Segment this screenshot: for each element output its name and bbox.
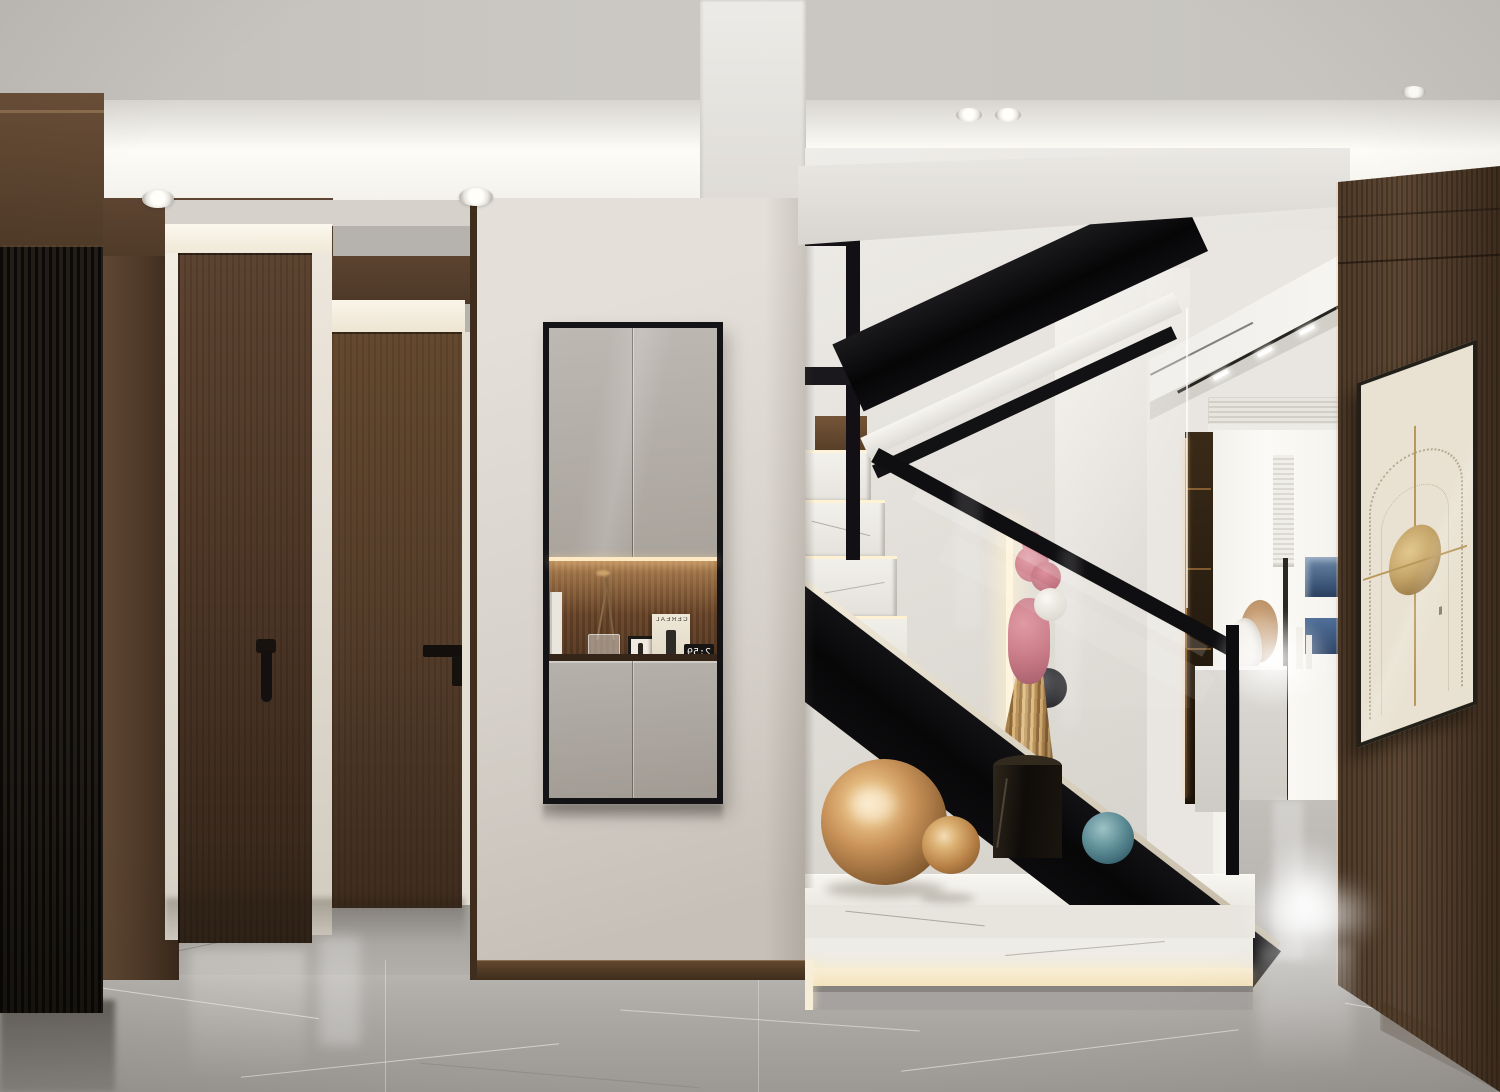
portal2-header	[332, 256, 470, 304]
gold-sphere-highlight	[851, 788, 895, 822]
door-grain	[332, 332, 462, 908]
balustrade-end-post	[1226, 625, 1239, 875]
ceiling-column	[700, 0, 806, 214]
platform-left-led	[805, 960, 813, 1010]
downlight-icon	[142, 190, 174, 208]
door-1-handle-drop	[261, 650, 272, 702]
display-shelf-glint	[1187, 488, 1211, 490]
floor-glare-reflection	[1258, 945, 1353, 1075]
floor-reflection-dark	[0, 1000, 115, 1092]
platform-led-skirting	[805, 968, 1253, 986]
pedestal-cylinder	[993, 765, 1062, 858]
niche-led-strip	[549, 557, 717, 561]
branch-bloom	[596, 570, 610, 576]
display-shelf-glint	[1187, 568, 1211, 570]
framed-artwork	[1357, 339, 1477, 748]
cabinet-door-seam	[632, 661, 633, 798]
magazine-title: CEREAL	[652, 617, 690, 623]
hallway-wall-sliver-2	[462, 332, 470, 905]
platform-floor-strip	[805, 992, 1253, 1010]
ac-vent	[1208, 397, 1345, 426]
fluted-panel-shade	[0, 245, 103, 1013]
downlight-icon	[995, 108, 1021, 122]
downlight-icon	[956, 108, 982, 122]
left-wood-top-band	[0, 93, 104, 247]
cabinet-shadow	[543, 804, 723, 822]
hallway-wall-sliver	[312, 253, 332, 935]
glass-reflection-vertical	[955, 478, 981, 628]
art-glass-glare	[1361, 345, 1473, 743]
interior-scene: CEREAL 2:59	[0, 0, 1500, 1092]
floor-reflection-doors	[190, 950, 305, 1080]
floor-tile-seam	[385, 960, 386, 1092]
hallway-floor-shadow	[165, 898, 465, 943]
stair-left-corner-shade	[805, 208, 815, 888]
baseboard	[477, 960, 805, 980]
right-wood-edge-light	[1336, 182, 1338, 985]
floor-reflection-strip	[320, 935, 360, 1045]
center-wall-corner-shade	[765, 198, 805, 980]
downlight-icon	[1402, 86, 1426, 98]
bulkhead-corner-highlight	[1186, 308, 1188, 608]
left-wood-trim	[0, 110, 104, 113]
platform-face-1	[805, 905, 1255, 938]
floor-tile-seam	[758, 965, 759, 1092]
hallway-wall-strip	[165, 253, 178, 940]
teal-glass-sphere	[1082, 812, 1134, 864]
cabinet-lower-doors	[549, 661, 717, 798]
glass-reflection-vertical	[1060, 548, 1080, 728]
leaning-frame	[550, 592, 562, 654]
niche-shelf-board	[549, 654, 717, 661]
door-grain	[178, 253, 312, 943]
downlight-icon	[459, 188, 493, 206]
window-blind	[1273, 455, 1294, 567]
hallway-ceiling-strip	[165, 200, 470, 226]
hallway-cove-glow-2	[332, 300, 465, 332]
gold-sphere-large	[821, 759, 947, 885]
gold-sphere-small	[922, 816, 980, 874]
sphere-shadow	[920, 893, 975, 903]
cabinet-sheen	[549, 328, 717, 558]
hallway-cove-glow-1	[165, 224, 332, 255]
